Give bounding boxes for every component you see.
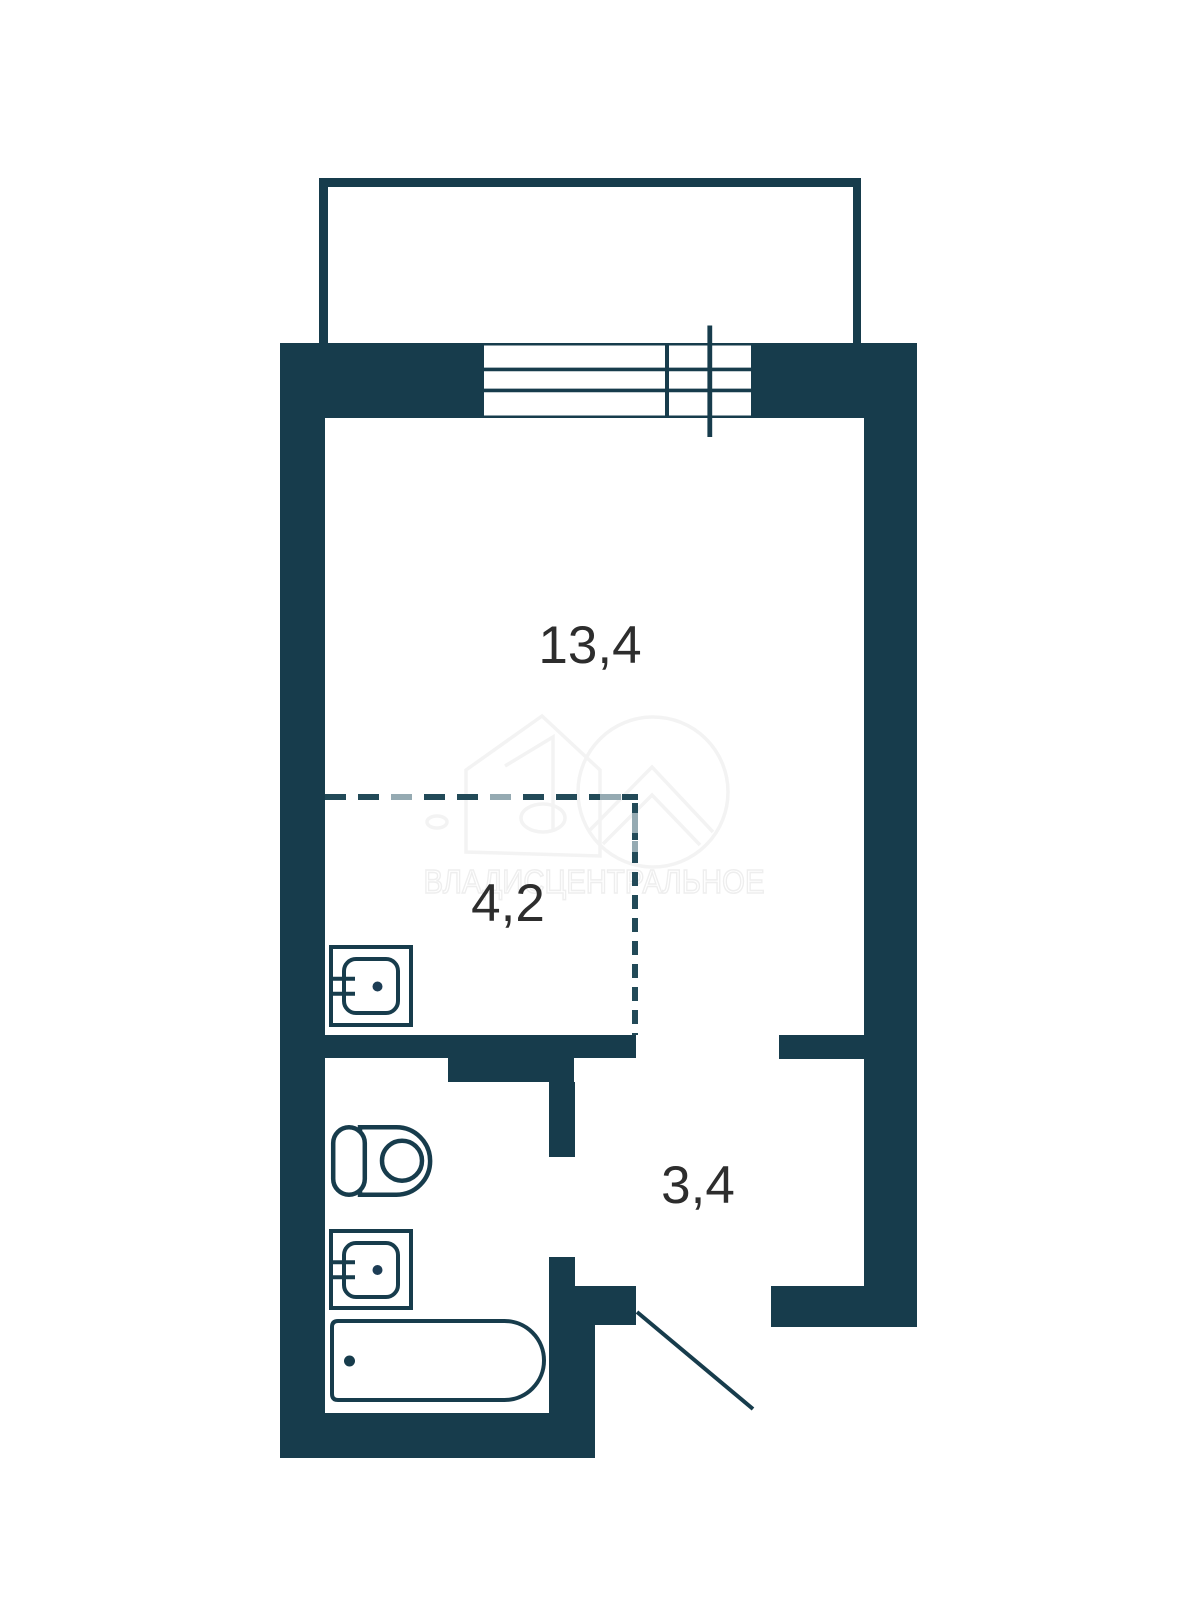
svg-text:13,4: 13,4 xyxy=(538,616,641,675)
svg-text:4,2: 4,2 xyxy=(471,874,545,933)
svg-text:3,4: 3,4 xyxy=(661,1156,735,1215)
